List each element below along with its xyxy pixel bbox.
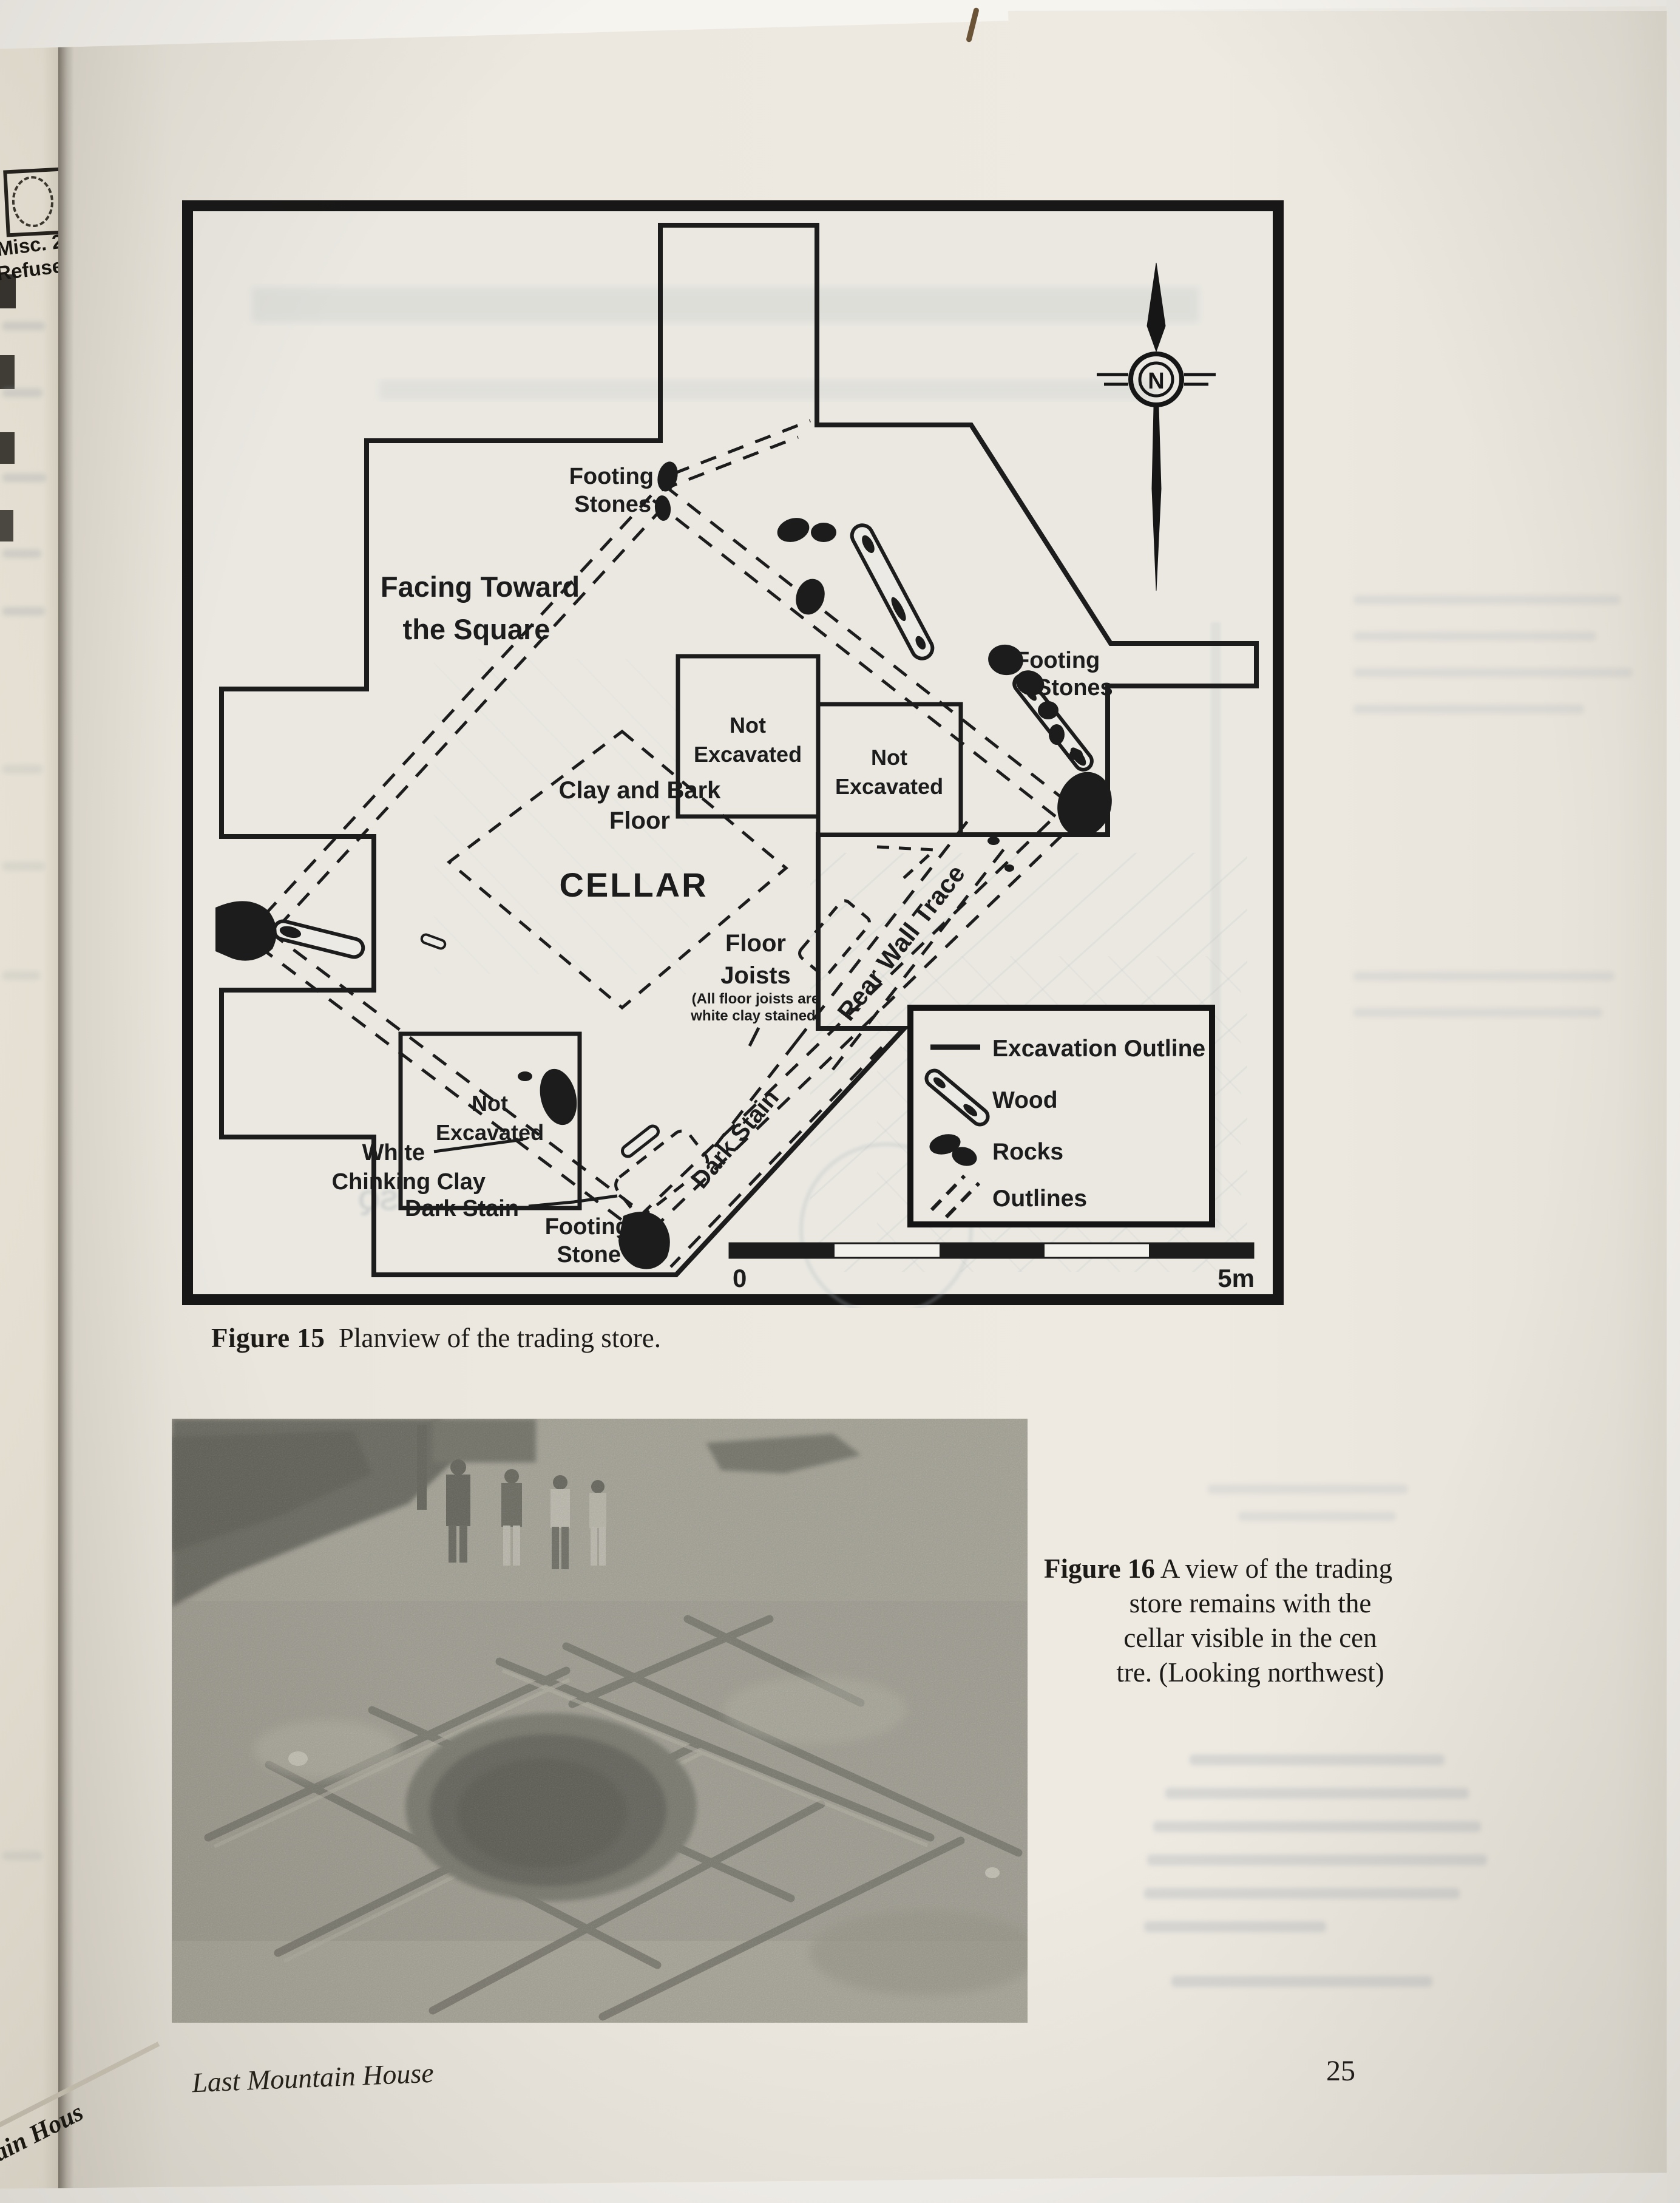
scale-5m: 5m [1218,1264,1255,1292]
adjacent-text-tab [0,274,16,308]
figure16-caption-line3: cellar visible in the cen [1044,1621,1457,1655]
label-white-chinking-1: White [362,1140,425,1166]
legend-label-0: Excavation Outline [992,1036,1205,1062]
label-cellar: CELLAR [559,866,708,904]
label-white-chinking-2: Chinking Clay [332,1169,486,1195]
label-not-excavated-bl-1: Not [472,1091,508,1116]
backdrop-top-right [910,0,1680,12]
label-footing-stone-bottom-1: Footing [545,1214,629,1240]
left-corner-stone [215,901,277,960]
page-number: 25 [1326,2054,1355,2088]
legend: Excavation Outline Wood Rocks Outlines [910,1008,1212,1224]
label-footing-stones-right-1: Footing [1015,648,1100,673]
label-clay-bark-2: Floor [609,807,670,834]
figure16-caption-line4: tre. (Looking northwest) [1044,1655,1457,1690]
legend-label-3: Outlines [992,1186,1087,1212]
label-footing-stones-top-2: Stones [574,492,651,517]
label-not-excavated-mid-2: Excavated [835,774,943,799]
figure16-caption: Figure 16 A view of the trading store re… [1044,1552,1457,1690]
label-facing-2: the Square [403,613,550,645]
adjacent-text-tab [0,355,15,389]
refuse-pit-plan-icon [3,168,66,237]
figure16-caption-line2: store remains with the [1044,1586,1457,1621]
label-footing-stone-bottom-2: Stone [557,1242,621,1268]
figure15-caption-text: Planview of the trading store. [339,1323,661,1353]
scale-zero: 0 [733,1264,747,1292]
label-footing-stones-right-2: Stones [1036,675,1113,701]
figure16-caption-line1: Figure 16 A view of the trading [1044,1552,1457,1586]
adjacent-page-strip: Misc. 2 Refuse Pi [0,0,61,2203]
legend-label-1: Wood [992,1087,1058,1113]
label-not-excavated-top-1: Not [730,713,766,738]
figure15-plan: TYPICAL SQ [179,197,1287,1308]
label-not-excavated-bl-2: Excavated [436,1120,544,1145]
adjacent-text-tab [0,510,13,541]
book-page-photo: Misc. 2 Refuse Pi [0,0,1680,2203]
label-clay-bark-1: Clay and Bark [559,777,722,804]
backdrop-right [1667,0,1680,2203]
label-dark-stain-horizontal: Dark Stain [405,1196,519,1221]
label-floor-joists-1: Floor [725,930,786,957]
label-joists-note-1: (All floor joists are [692,991,820,1007]
label-footing-stones-top-1: Footing [569,464,654,489]
label-facing-1: Facing Toward [381,571,580,603]
figure15-caption-label: Figure 15 [211,1323,325,1353]
figure16-caption-label: Figure 16 [1044,1553,1155,1584]
label-not-excavated-top-2: Excavated [694,742,802,767]
figure16-photo [172,1419,1028,2023]
adjacent-text-tab [0,432,15,464]
north-letter: N [1148,368,1164,394]
book-gutter-shadow [58,0,74,2203]
label-joists-note-2: white clay stained) [690,1008,820,1024]
label-not-excavated-mid-1: Not [871,745,907,770]
figure15-caption: Figure 15 Planview of the trading store. [211,1322,1122,1354]
label-floor-joists-2: Joists [720,962,791,989]
excavation-photo [172,1419,1028,2023]
dashed-circle-icon [11,175,55,228]
legend-label-2: Rocks [992,1139,1063,1165]
